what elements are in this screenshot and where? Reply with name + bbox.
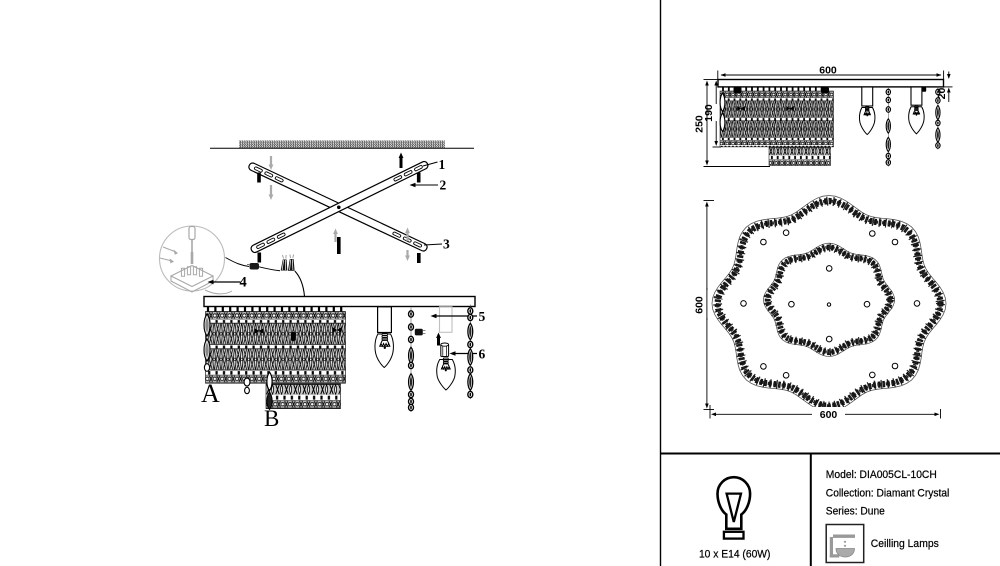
svg-text:Model: DIA005CL-10CH: Model: DIA005CL-10CH [826,469,937,481]
svg-text:6: 6 [479,347,486,362]
svg-text:B: B [264,406,279,431]
svg-text:5: 5 [479,309,486,324]
svg-text:Series: Dune: Series: Dune [826,506,885,518]
svg-text:10 x E14 (60W): 10 x E14 (60W) [699,549,771,561]
svg-text:3: 3 [443,237,450,252]
svg-text:2: 2 [440,178,447,193]
svg-text:4: 4 [240,275,247,291]
svg-text:600: 600 [694,296,706,314]
svg-text:Ceilling Lamps: Ceilling Lamps [871,538,939,550]
svg-text:190: 190 [703,104,715,122]
svg-text:600: 600 [819,65,837,77]
svg-text:A: A [201,379,220,408]
svg-text:600: 600 [820,409,838,421]
svg-text:1: 1 [439,157,446,172]
svg-text:20: 20 [936,88,948,100]
svg-text:Collection: Diamant Crystal: Collection: Diamant Crystal [826,487,950,499]
